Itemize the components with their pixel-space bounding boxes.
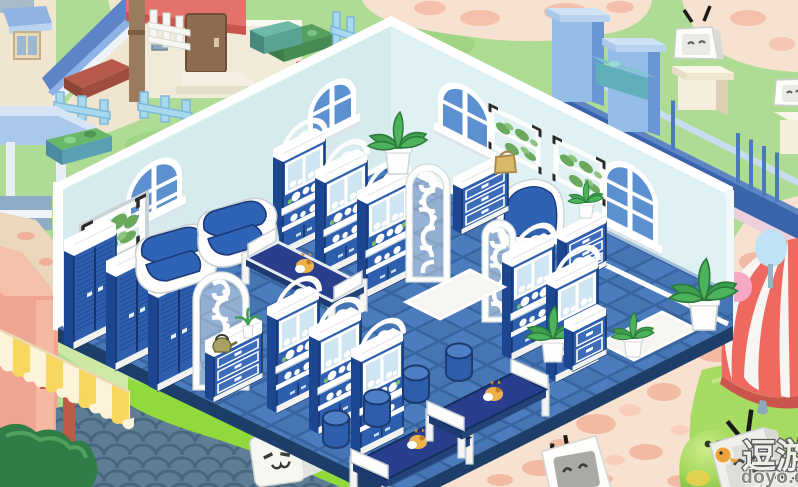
svg-text:doyo.cn: doyo.cn — [741, 467, 798, 487]
